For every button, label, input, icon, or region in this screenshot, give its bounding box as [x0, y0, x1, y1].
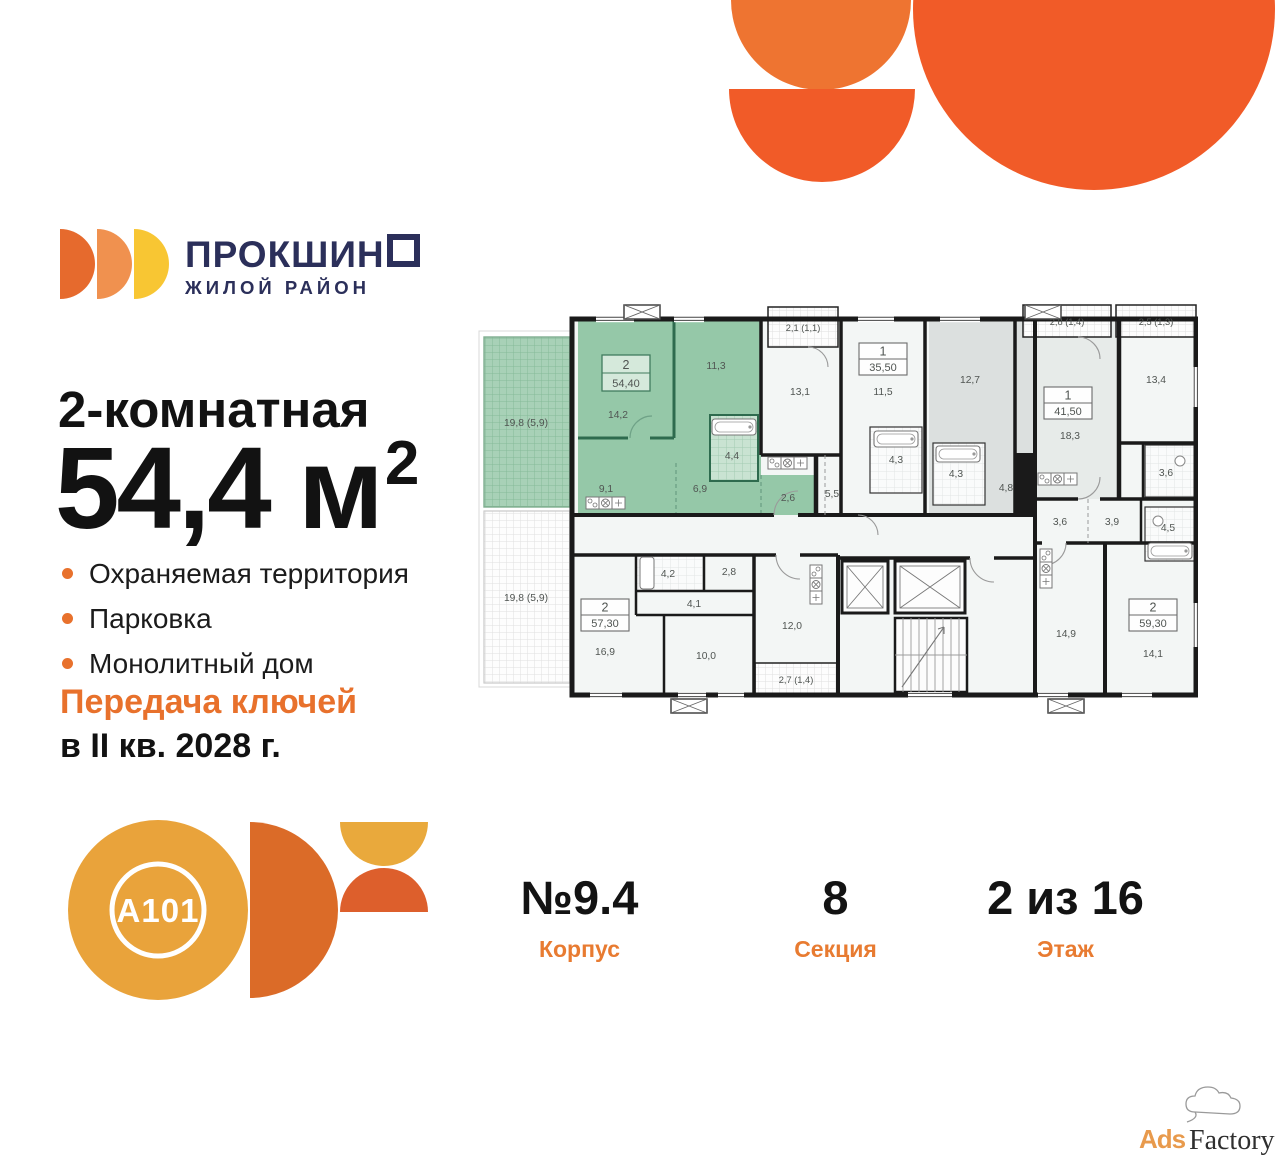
- svg-text:2: 2: [1150, 601, 1157, 615]
- room-area-label: 4,5: [1161, 523, 1176, 534]
- feature-list: Охраняемая территория Парковка Монолитны…: [62, 551, 409, 686]
- feature-item: Монолитный дом: [62, 641, 409, 686]
- svg-text:59,30: 59,30: [1139, 618, 1167, 630]
- room-area-label: 9,1: [599, 484, 614, 495]
- bullet-icon: [62, 613, 73, 624]
- room-area-label: 3,9: [1105, 517, 1120, 528]
- section-value: 8: [758, 872, 913, 924]
- half-circle-light-orange: [731, 0, 911, 90]
- room-area-label: 4,2: [661, 569, 676, 580]
- room-area-label: 12,0: [782, 621, 802, 632]
- developer-logo: A101: [60, 812, 432, 1012]
- logo-bowl-top: [340, 822, 428, 866]
- room-area-label: 10,0: [696, 651, 716, 662]
- brand-subtitle: ЖИЛОЙ РАЙОН: [185, 277, 420, 299]
- listing-area: 54,4 м2: [55, 430, 419, 546]
- svg-text:2: 2: [602, 601, 609, 615]
- room-area-label: 2,8 (1,4): [1050, 317, 1085, 327]
- section-label: Секция: [758, 936, 913, 963]
- room-area-label: 14,2: [608, 410, 628, 421]
- handover-line1: Передача ключей: [60, 683, 357, 722]
- room-area-label: 2,1 (1,1): [786, 323, 821, 333]
- watermark-factory: Factory: [1189, 1125, 1275, 1156]
- watermark-ads: Ads: [1139, 1124, 1186, 1154]
- elevator-shafts: [842, 561, 965, 613]
- room-area-label: 2,7 (1,4): [779, 675, 814, 685]
- room-area-label: 3,6: [1053, 517, 1068, 528]
- room-area-label: 6,9: [693, 484, 708, 495]
- svg-text:1: 1: [1065, 389, 1072, 403]
- room-area-label: 2,5 (1,3): [1139, 317, 1174, 327]
- bullet-icon: [62, 568, 73, 579]
- floor-value: 2 из 16: [968, 872, 1163, 924]
- svg-text:54,40: 54,40: [612, 378, 640, 390]
- room-area-label: 11,3: [706, 361, 726, 372]
- room-area-label: 4,3: [949, 469, 964, 480]
- logo-bowl-bottom: [340, 868, 428, 912]
- bullet-icon: [62, 658, 73, 669]
- staircase: [895, 618, 967, 692]
- room-area-label: 19,8 (5,9): [504, 418, 548, 429]
- svg-text:57,30: 57,30: [591, 618, 619, 630]
- brand-logo-marks: [57, 226, 171, 302]
- floor-label: Этаж: [968, 936, 1163, 963]
- cloud-icon: [1186, 1087, 1240, 1122]
- logo-half-circle: [250, 822, 338, 998]
- half-circle-orange: [729, 89, 915, 182]
- unit-label-573: 2 57,30: [581, 599, 629, 631]
- feature-item: Парковка: [62, 596, 409, 641]
- room-area-label: 5,5: [825, 489, 840, 500]
- room-area-label: 2,8: [722, 567, 737, 578]
- svg-text:35,50: 35,50: [869, 362, 897, 374]
- brand-logo: ПРОКШИНО ЖИЛОЙ РАЙОН: [57, 226, 420, 302]
- room-area-label: 14,9: [1056, 629, 1076, 640]
- unit-label-593: 2 59,30: [1129, 599, 1177, 631]
- building-value: №9.4: [497, 872, 662, 924]
- unit-label-main: 2 54,40: [602, 355, 650, 391]
- detail-floor: 2 из 16 Этаж: [968, 872, 1163, 963]
- handover-line2: в II кв. 2028 г.: [60, 727, 281, 766]
- svg-text:41,50: 41,50: [1054, 406, 1082, 418]
- decorative-shapes: [0, 0, 1280, 200]
- unit-label-355: 1 35,50: [859, 343, 907, 375]
- detail-building: №9.4 Корпус: [497, 872, 662, 963]
- room-area-label: 13,4: [1146, 375, 1166, 386]
- room-area-label: 4,8: [999, 483, 1014, 494]
- room-area-label: 4,4: [725, 451, 740, 462]
- developer-logo-text: A101: [117, 892, 200, 929]
- room-area-label: 12,7: [960, 375, 980, 386]
- room-area-label: 16,9: [595, 647, 615, 658]
- svg-text:1: 1: [880, 345, 887, 359]
- unit-label-415: 1 41,50: [1044, 387, 1092, 419]
- brand-name: ПРОКШИНО: [185, 234, 420, 273]
- area-superscript: 2: [385, 429, 419, 498]
- room-area-label: 2,6: [781, 493, 796, 504]
- room-area-label: 4,1: [687, 599, 702, 610]
- big-circle-orange: [913, 0, 1275, 190]
- square-o-glyph: О: [387, 234, 420, 267]
- watermark: Ads Factory: [1133, 1076, 1280, 1160]
- svg-text:2: 2: [623, 358, 630, 372]
- feature-item: Охраняемая территория: [62, 551, 409, 596]
- room-area-label: 13,1: [790, 387, 810, 398]
- detail-section: 8 Секция: [758, 872, 913, 963]
- building-label: Корпус: [497, 936, 662, 963]
- room-area-label: 19,8 (5,9): [504, 593, 548, 604]
- room-area-label: 18,3: [1060, 431, 1080, 442]
- room-area-label: 11,5: [873, 387, 893, 398]
- floor-plan: 2 54,40 1 35,50 1 41,50 2 57,30 2 59,30 …: [478, 303, 1198, 715]
- listing-banner: { "colors":{"accent_orange":"#E8712C","b…: [0, 0, 1280, 1160]
- room-area-label: 14,1: [1143, 649, 1163, 660]
- room-area-label: 4,3: [889, 455, 904, 466]
- room-area-label: 3,6: [1159, 468, 1174, 479]
